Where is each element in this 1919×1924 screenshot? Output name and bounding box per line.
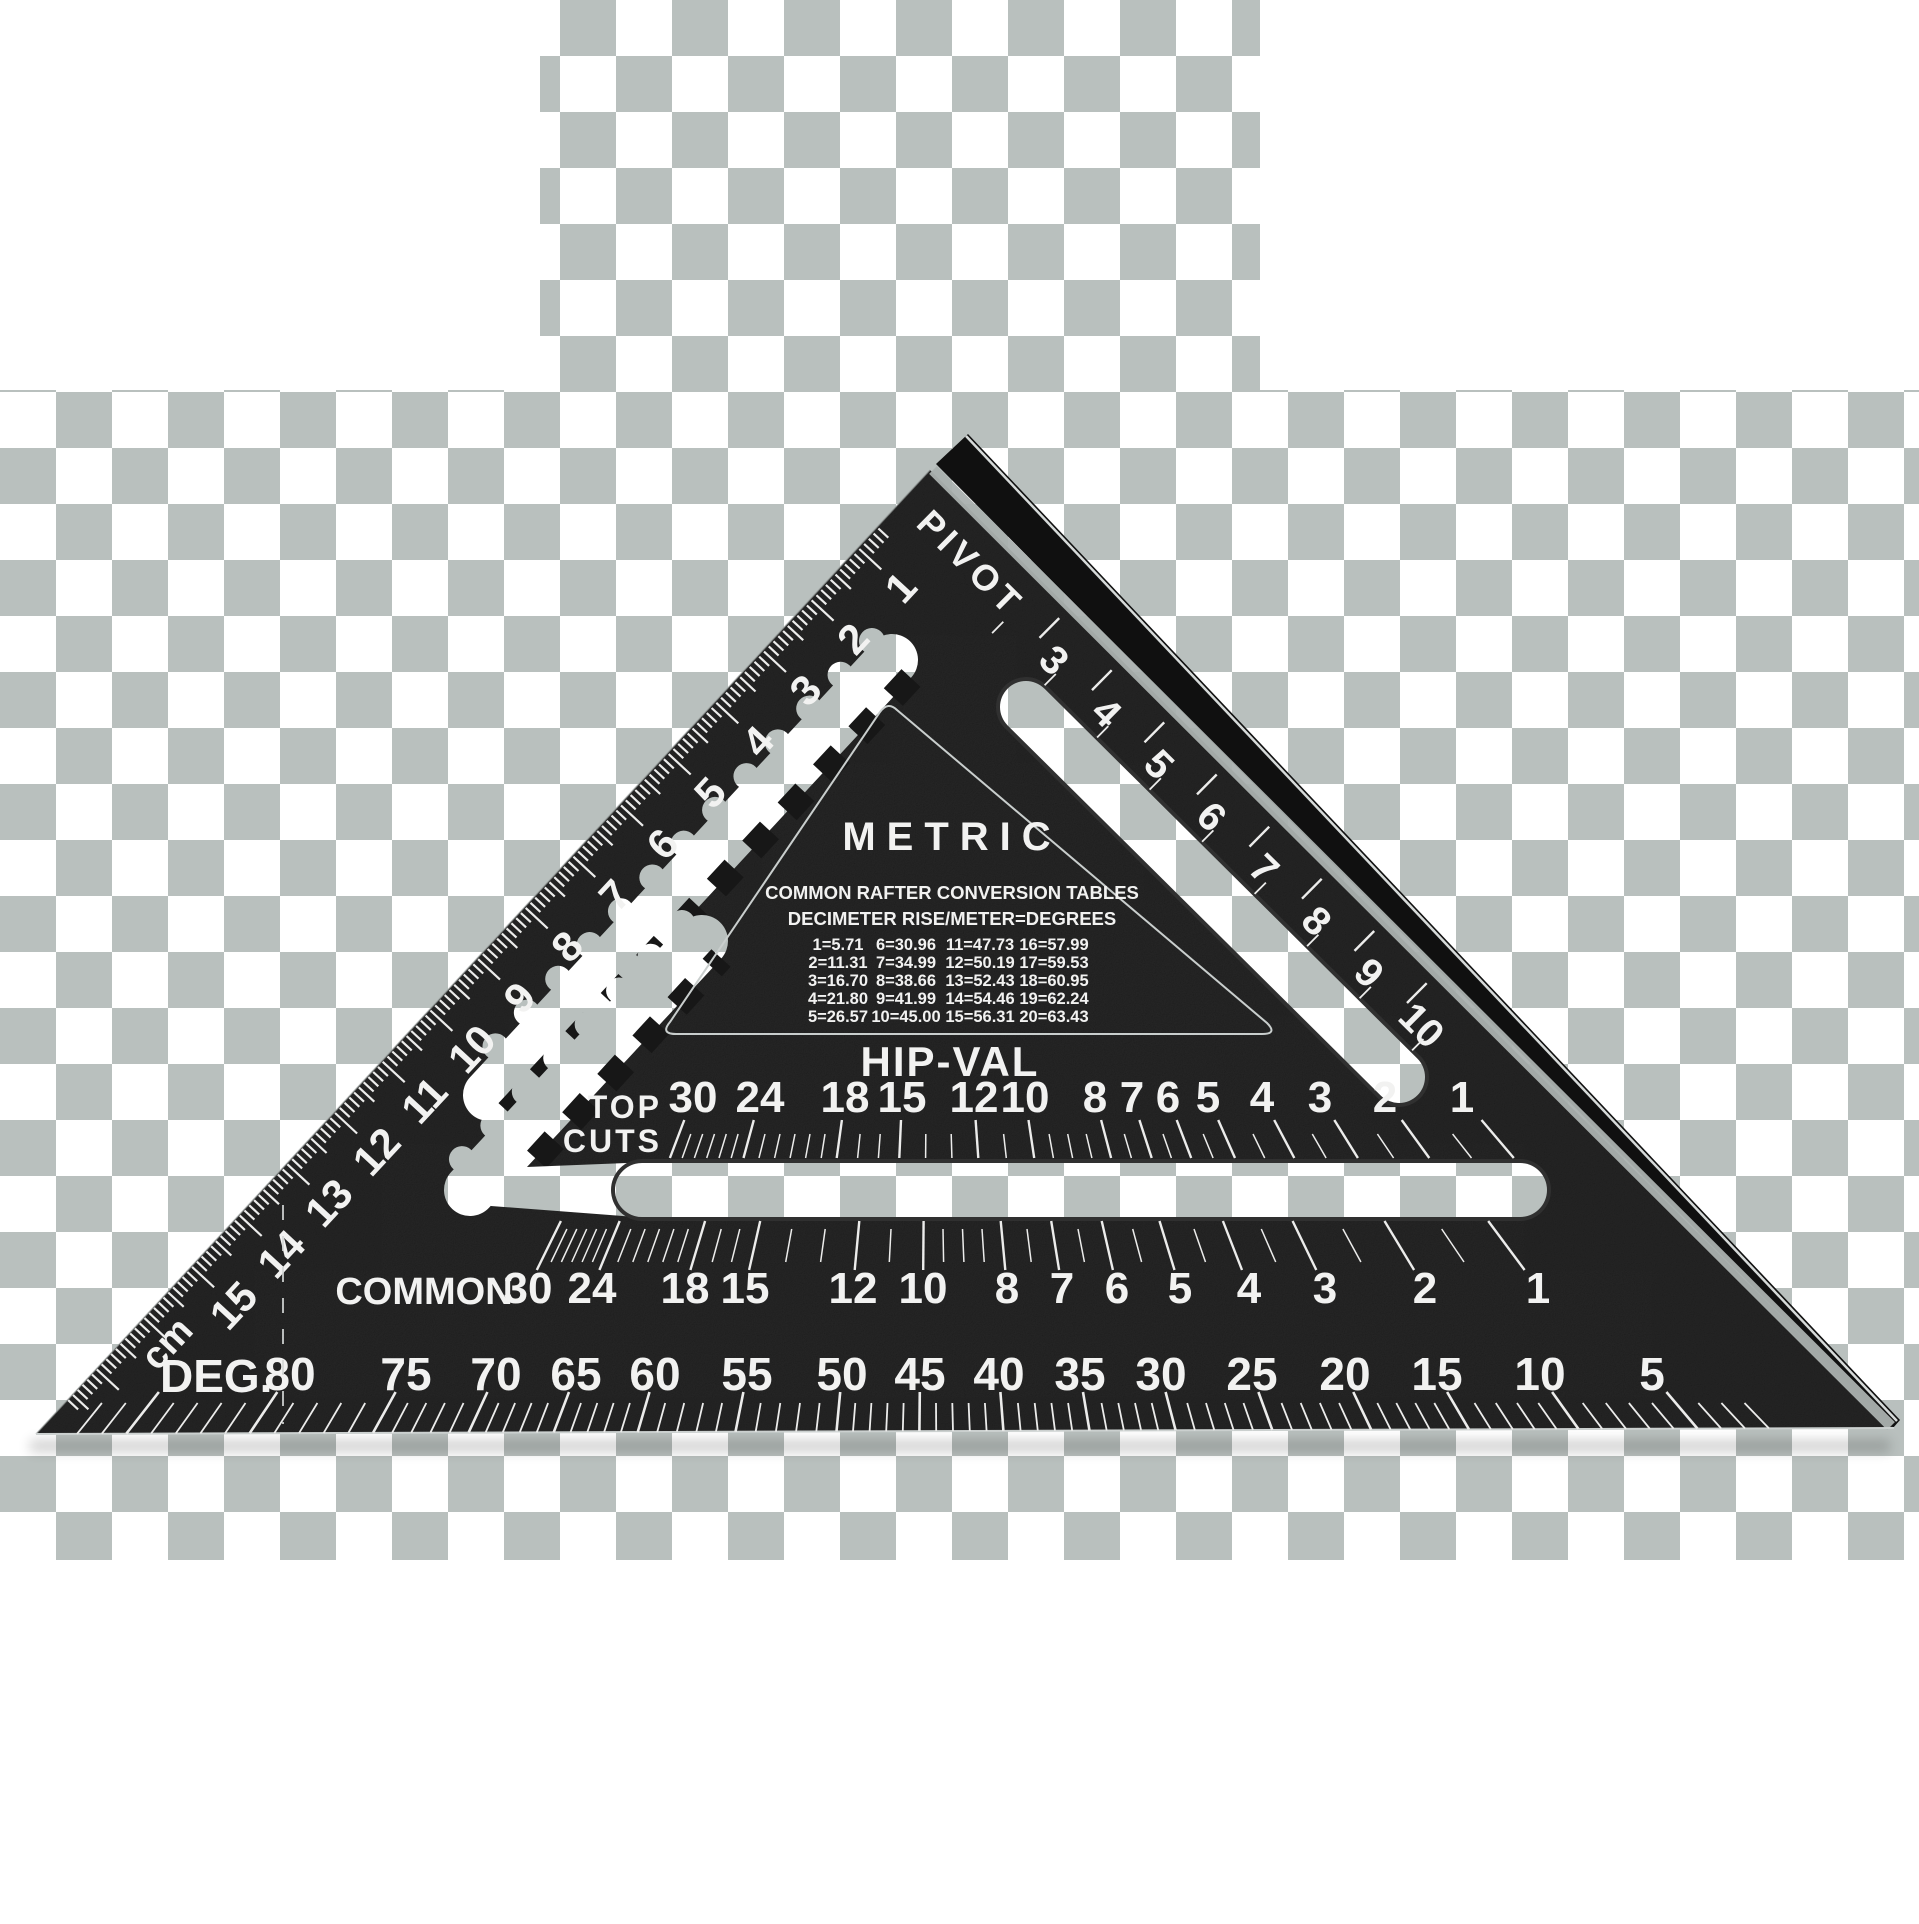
common-number: 7 — [1050, 1264, 1074, 1313]
common-number: 18 — [661, 1264, 710, 1313]
deg-number: 40 — [973, 1348, 1024, 1400]
common-number: 12 — [829, 1264, 878, 1313]
conversion-cell: 9=41.99 — [876, 990, 936, 1008]
hip-val-tick — [951, 1134, 952, 1158]
conversion-cell: 13=52.43 — [945, 972, 1014, 990]
drop-shadow — [30, 1440, 1890, 1452]
deg-number: 65 — [550, 1348, 601, 1400]
conversion-cell: 10=45.00 — [871, 1008, 940, 1026]
common-number: 4 — [1237, 1264, 1262, 1313]
hip-val-tick — [899, 1120, 901, 1158]
hip-val-number: 18 — [821, 1073, 870, 1122]
conversion-cell: 15=56.31 — [945, 1008, 1014, 1026]
conversion-cell: 20=63.43 — [1019, 1008, 1088, 1026]
deg-number: 70 — [470, 1348, 521, 1400]
deg-number: 30 — [1135, 1348, 1186, 1400]
deg-number: 50 — [816, 1348, 867, 1400]
common-number: 2 — [1413, 1264, 1437, 1313]
hip-val-number: 3 — [1308, 1073, 1332, 1122]
conversion-cell: 16=57.99 — [1019, 936, 1088, 954]
conversion-cell: 3=16.70 — [808, 972, 868, 990]
conversion-cell: 4=21.80 — [808, 990, 868, 1008]
deg-number: 10 — [1514, 1348, 1565, 1400]
hip-val-number: 2 — [1373, 1073, 1397, 1122]
deg-tick — [969, 1403, 970, 1431]
hip-val-number: 7 — [1120, 1073, 1144, 1122]
conversion-cell: 11=47.73 — [946, 936, 1014, 954]
hip-val-number: 12 — [950, 1073, 999, 1122]
hip-val-number: 4 — [1250, 1073, 1275, 1122]
conversion-cell: 5=26.57 — [808, 1008, 868, 1026]
common-number: 1 — [1526, 1264, 1550, 1313]
common-number: 10 — [899, 1264, 948, 1313]
hip-val-number: 15 — [878, 1073, 927, 1122]
common-tick — [943, 1229, 944, 1262]
panel-title: METRIC — [842, 815, 1061, 859]
top-cuts-label-line2: CUTS — [563, 1123, 662, 1159]
common-number: 24 — [568, 1264, 617, 1313]
common-number: 30 — [504, 1264, 553, 1313]
common-number: 5 — [1168, 1264, 1192, 1313]
checker-background-top — [540, 0, 1260, 400]
deg-tick — [952, 1403, 953, 1431]
deg-number: 75 — [380, 1348, 431, 1400]
hip-val-number: 5 — [1196, 1073, 1220, 1122]
conversion-cell: 7=34.99 — [876, 954, 936, 972]
hip-val-number: 24 — [736, 1073, 785, 1122]
hip-val-number: 30 — [669, 1073, 718, 1122]
conversion-cell: 18=60.95 — [1019, 972, 1088, 990]
conversion-cell: 6=30.96 — [876, 936, 936, 954]
common-scale-label: COMMON — [335, 1271, 512, 1313]
conversion-cell: 2=11.31 — [808, 954, 867, 972]
deg-number: 80 — [264, 1348, 315, 1400]
deg-number: 20 — [1319, 1348, 1370, 1400]
deg-number: 5 — [1639, 1348, 1665, 1400]
common-number: 3 — [1313, 1264, 1337, 1313]
conversion-cell: 8=38.66 — [876, 972, 936, 990]
deg-number: 35 — [1054, 1348, 1105, 1400]
deg-number: 25 — [1226, 1348, 1277, 1400]
panel-subtitle-2: DECIMETER RISE/METER=DEGREES — [788, 908, 1116, 929]
conversion-cell: 1=5.71 — [813, 936, 864, 954]
hip-val-number: 10 — [1001, 1073, 1050, 1122]
common-number: 6 — [1105, 1264, 1129, 1313]
horizontal-slot — [453, 1162, 1520, 1218]
deg-number: 55 — [721, 1348, 772, 1400]
conversion-cell: 12=50.19 — [945, 954, 1014, 972]
deg-number: 60 — [629, 1348, 680, 1400]
metric-speed-square-photo: PIVOT METRIC COMMON RAFTER CONVERSION TA… — [0, 0, 1919, 1919]
hip-val-number: 6 — [1156, 1073, 1180, 1122]
top-cuts-label-line1: TOP — [588, 1089, 662, 1125]
panel-subtitle-1: COMMON RAFTER CONVERSION TABLES — [765, 882, 1139, 903]
conversion-cell: 17=59.53 — [1019, 954, 1088, 972]
conversion-cell: 19=62.24 — [1019, 990, 1089, 1008]
conversion-table: 1=5.716=30.9611=47.7316=57.992=11.317=34… — [808, 936, 1090, 1026]
conversion-cell: 14=54.46 — [945, 990, 1014, 1008]
common-number: 15 — [721, 1264, 770, 1313]
deg-number: 15 — [1411, 1348, 1462, 1400]
hip-val-number: 8 — [1083, 1073, 1107, 1122]
deg-tick — [903, 1403, 904, 1431]
hip-val-number: 1 — [1450, 1073, 1474, 1122]
common-number: 8 — [995, 1264, 1019, 1313]
